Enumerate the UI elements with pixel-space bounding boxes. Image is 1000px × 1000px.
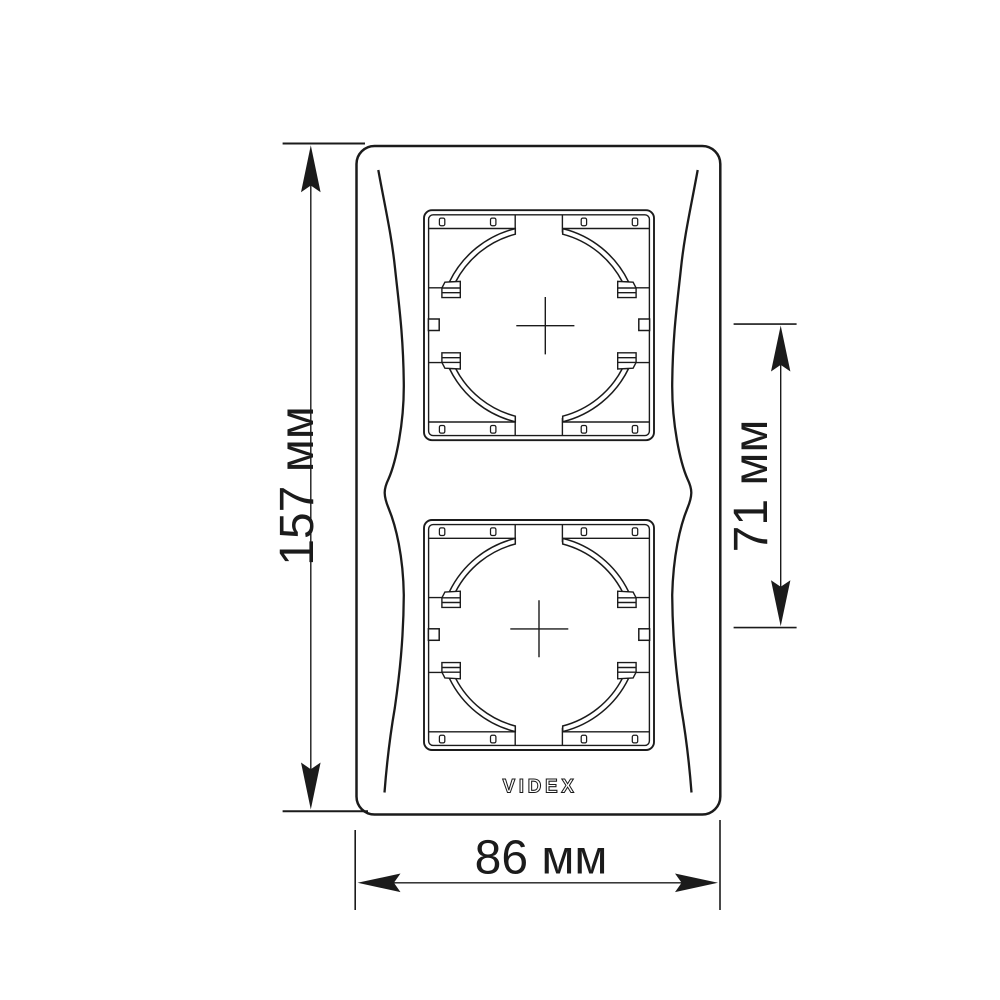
svg-text:157 мм: 157 мм — [271, 406, 324, 565]
svg-text:VIDEX: VIDEX — [502, 777, 577, 798]
svg-text:71 мм: 71 мм — [725, 420, 778, 553]
svg-text:86 мм: 86 мм — [475, 832, 608, 885]
